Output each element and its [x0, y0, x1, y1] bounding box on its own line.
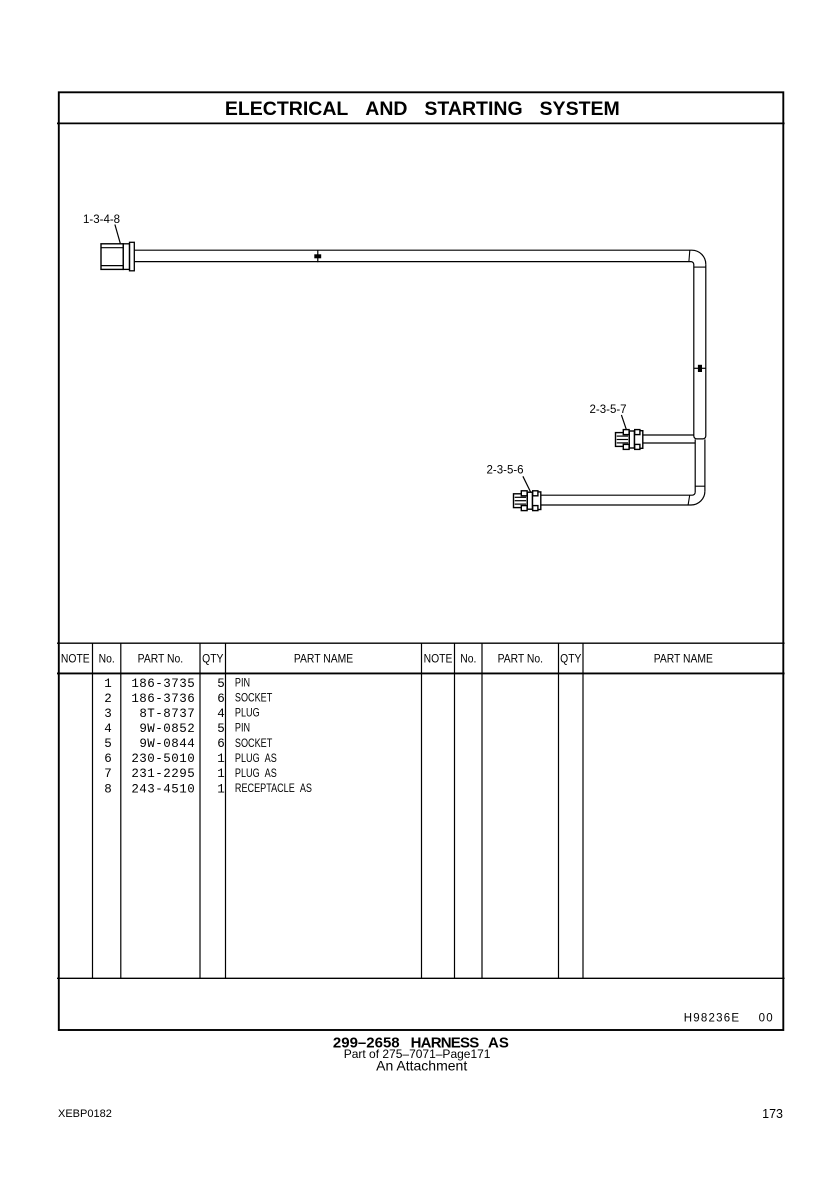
svg-text:1: 1: [217, 752, 225, 766]
svg-text:PLUG AS: PLUG AS: [235, 753, 277, 765]
svg-text:No.: No.: [460, 653, 476, 666]
svg-text:2-3-5-6: 2-3-5-6: [487, 465, 524, 477]
svg-text:6: 6: [217, 737, 225, 751]
svg-text:PIN: PIN: [235, 723, 250, 735]
svg-text:230-5010: 230-5010: [131, 752, 195, 766]
svg-text:1: 1: [217, 782, 225, 796]
svg-text:9W-0844: 9W-0844: [139, 737, 195, 751]
svg-text:231-2295: 231-2295: [131, 767, 195, 781]
svg-text:No.: No.: [99, 653, 115, 666]
svg-text:2: 2: [104, 692, 112, 706]
svg-text:PART NAME: PART NAME: [294, 653, 353, 666]
svg-text:PART NAME: PART NAME: [654, 653, 713, 666]
svg-text:1: 1: [104, 677, 112, 691]
svg-text:8T-8737: 8T-8737: [139, 707, 195, 721]
svg-text:PLUG: PLUG: [235, 708, 260, 720]
svg-text:4: 4: [217, 707, 225, 721]
svg-text:NOTE: NOTE: [424, 653, 453, 666]
svg-text:SOCKET: SOCKET: [235, 738, 273, 750]
svg-text:2-3-5-7: 2-3-5-7: [590, 404, 627, 416]
svg-text:QTY: QTY: [202, 653, 224, 666]
svg-text:8: 8: [104, 782, 112, 796]
svg-text:9W-0852: 9W-0852: [139, 722, 195, 736]
svg-text:An Attachment: An Attachment: [376, 1058, 467, 1074]
svg-text:7: 7: [104, 767, 112, 781]
svg-text:XEBP0182: XEBP0182: [58, 1108, 112, 1120]
svg-text:RECEPTACLE AS: RECEPTACLE AS: [235, 783, 312, 795]
svg-text:SOCKET: SOCKET: [235, 693, 273, 705]
svg-text:H98236E00: H98236E00: [684, 1013, 774, 1025]
svg-text:5: 5: [104, 737, 112, 751]
svg-text:186-3736: 186-3736: [131, 692, 195, 706]
svg-text:6: 6: [104, 752, 112, 766]
svg-text:QTY: QTY: [560, 653, 582, 666]
svg-text:243-4510: 243-4510: [131, 782, 195, 796]
svg-text:PART No.: PART No.: [498, 653, 543, 666]
svg-text:173: 173: [762, 1107, 783, 1121]
svg-text:186-3735: 186-3735: [131, 677, 195, 691]
svg-text:5: 5: [217, 677, 225, 691]
svg-text:NOTE: NOTE: [61, 653, 90, 666]
svg-text:1-3-4-8: 1-3-4-8: [83, 214, 120, 226]
svg-text:4: 4: [104, 722, 112, 736]
svg-text:1: 1: [217, 767, 225, 781]
svg-text:PLUG AS: PLUG AS: [235, 768, 277, 780]
svg-text:6: 6: [217, 692, 225, 706]
svg-text:3: 3: [104, 707, 112, 721]
svg-text:PART No.: PART No.: [138, 653, 183, 666]
svg-text:ELECTRICAL AND STARTING SYSTEM: ELECTRICAL AND STARTING SYSTEM: [225, 98, 620, 120]
svg-text:PIN: PIN: [235, 678, 250, 690]
svg-text:5: 5: [217, 722, 225, 736]
